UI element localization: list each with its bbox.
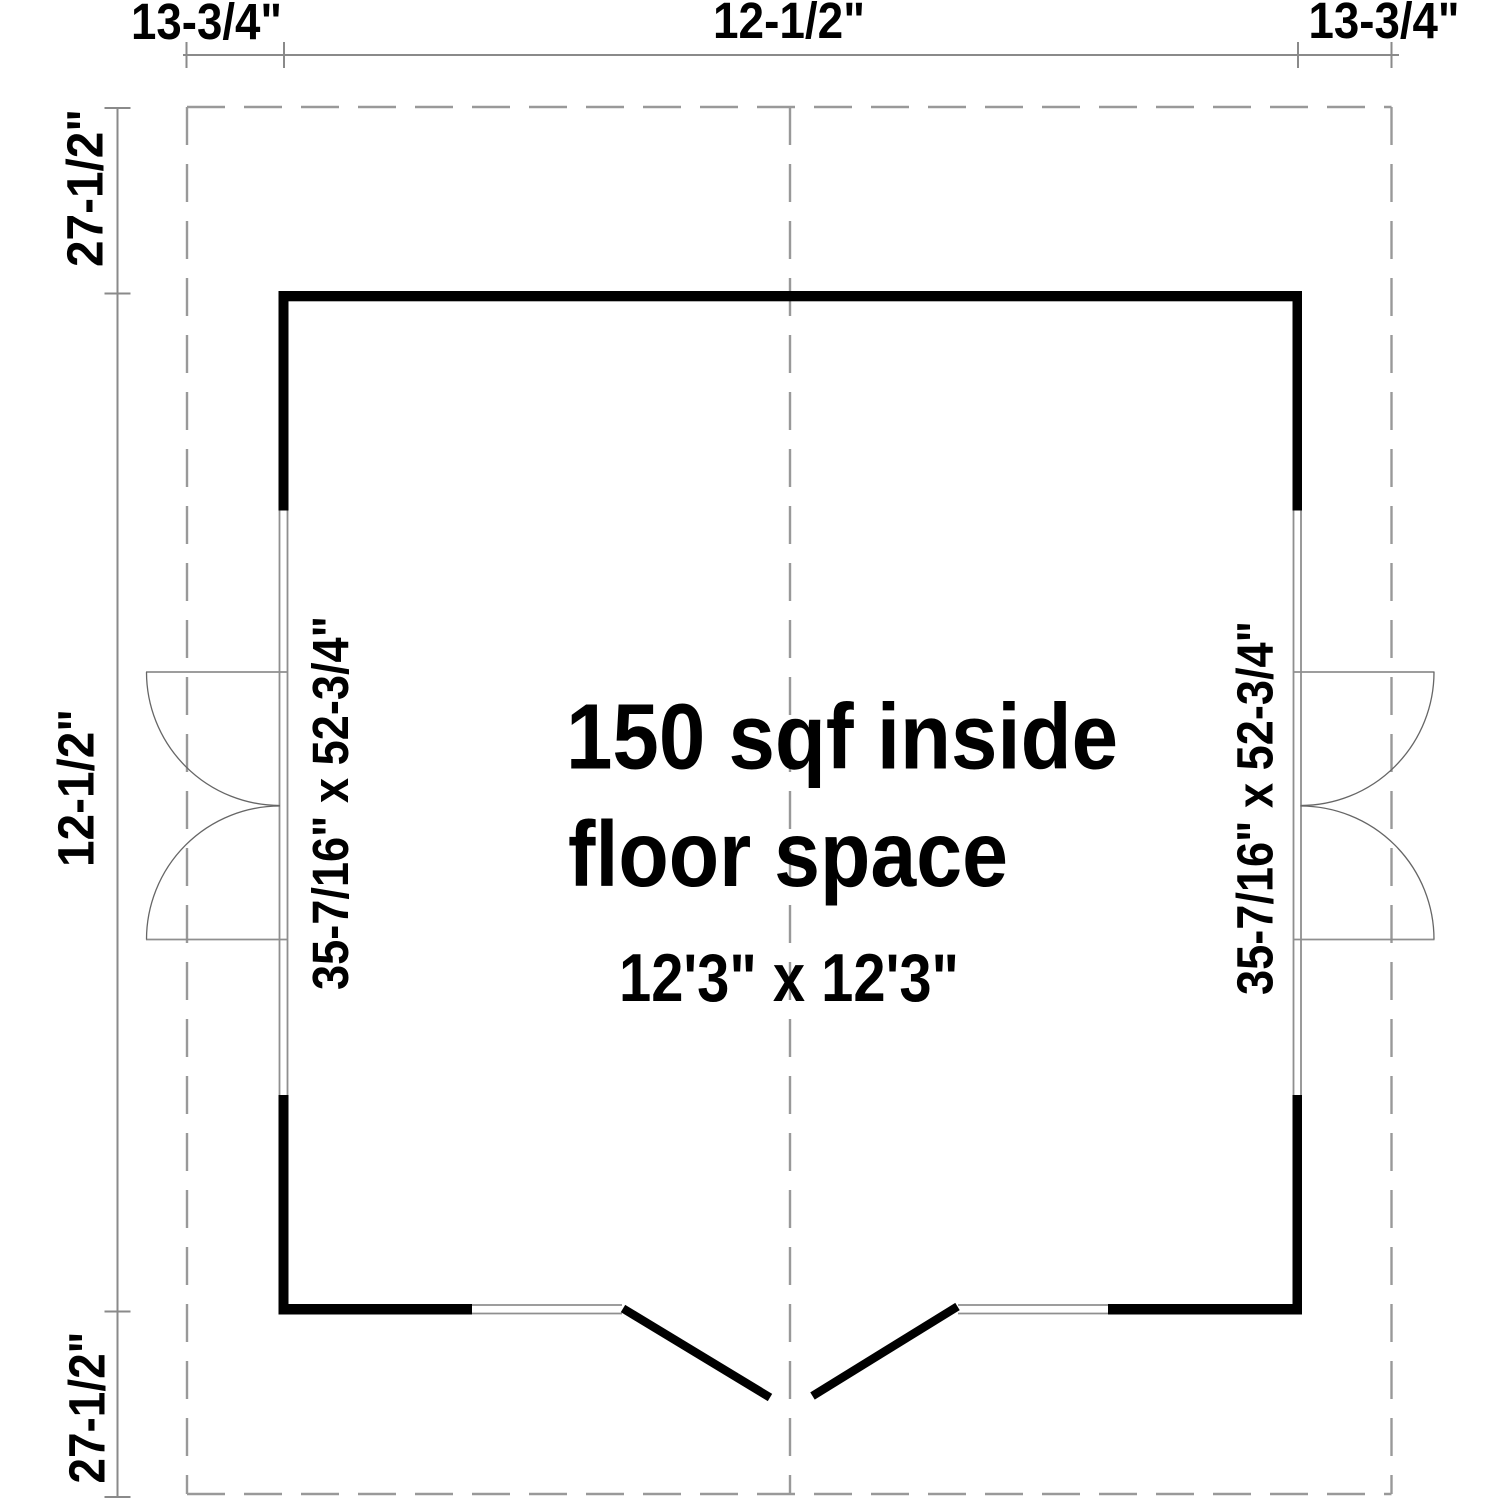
svg-text:150 sqf inside: 150 sqf inside [566,685,1118,789]
svg-text:12'3" x 12'3": 12'3" x 12'3" [619,940,959,1016]
svg-text:35-7/16" x 52-3/4": 35-7/16" x 52-3/4" [302,616,359,990]
svg-text:floor space: floor space [568,802,1008,906]
svg-text:27-1/2": 27-1/2" [58,1332,115,1484]
svg-text:13-3/4": 13-3/4" [131,0,282,50]
svg-text:12-1/2": 12-1/2" [48,709,105,867]
svg-text:13-3/4": 13-3/4" [1309,0,1460,49]
svg-text:12-1/2": 12-1/2" [713,0,865,49]
svg-text:35-7/16" x 52-3/4": 35-7/16" x 52-3/4" [1227,621,1284,995]
svg-text:27-1/2": 27-1/2" [57,109,114,267]
